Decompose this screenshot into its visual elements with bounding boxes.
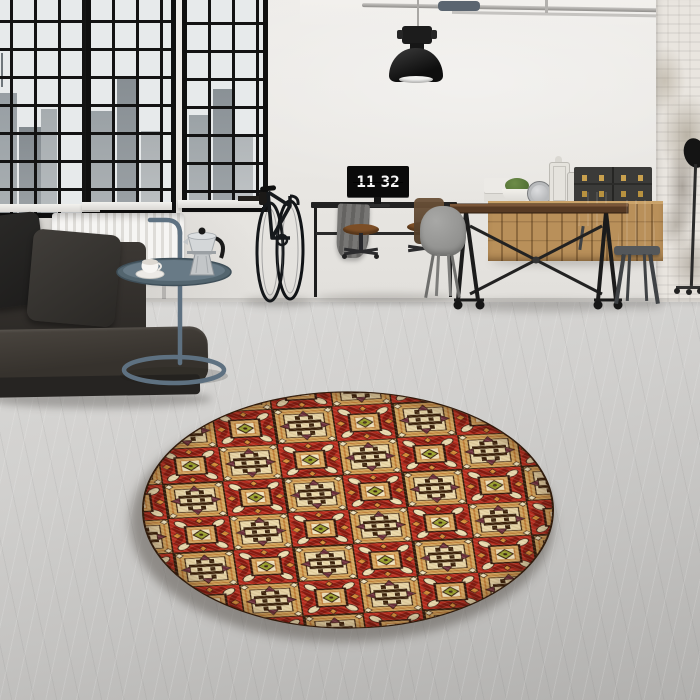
studio-lamp-pole (690, 164, 697, 286)
clock-hours: 11 (356, 172, 375, 191)
chair-leg (424, 254, 434, 298)
lamp-lug (431, 30, 437, 39)
monitor-flip-clock: 1132 (347, 166, 409, 197)
pendant-lamp (389, 26, 443, 84)
brass-clasp (582, 175, 587, 181)
bicycle (238, 176, 322, 308)
tray-side-table (110, 208, 245, 393)
bike-saddle (260, 185, 276, 192)
chair-leg (648, 254, 659, 304)
sofa-pillow (26, 228, 122, 327)
pipe-stub (545, 0, 548, 13)
round-rug (118, 372, 578, 660)
chair-leg (643, 254, 648, 301)
lamp-cap (402, 26, 432, 44)
stool-caster (374, 254, 379, 259)
office-stool (342, 224, 380, 262)
shell-chair-seat (420, 206, 466, 256)
pipe-junction-box (438, 1, 480, 11)
loft-room: 1132 (0, 0, 700, 700)
bike-front-wheel (277, 201, 303, 299)
window-muntins (0, 0, 85, 213)
brass-clasp (599, 175, 604, 181)
chair-leg (626, 254, 631, 301)
studio-lamp-caster (674, 288, 680, 294)
rug-surface (143, 392, 553, 628)
brass-clasp (621, 175, 626, 181)
chair-leg (435, 254, 440, 296)
metal-chair-front (614, 200, 660, 305)
shell-chair (420, 206, 468, 300)
table-casters (454, 301, 623, 310)
brass-clasp (638, 175, 643, 181)
studio-lamp-caster (686, 289, 692, 295)
lamp-rim (399, 76, 433, 83)
stool-column (359, 233, 363, 250)
window-muntins (91, 0, 171, 209)
stool-caster (342, 254, 347, 259)
studio-lamp (672, 138, 700, 300)
clock-minutes: 32 (381, 172, 400, 191)
tolix-chair-back (617, 200, 657, 248)
chair-leg (614, 254, 625, 304)
table-handle (150, 220, 180, 234)
bike-mount-bracket (259, 192, 267, 205)
trunk-lid-line (574, 183, 652, 185)
window-2 (86, 0, 176, 214)
desk-leg (314, 208, 317, 297)
lamp-lug (397, 30, 403, 39)
chair-leg (450, 254, 460, 298)
